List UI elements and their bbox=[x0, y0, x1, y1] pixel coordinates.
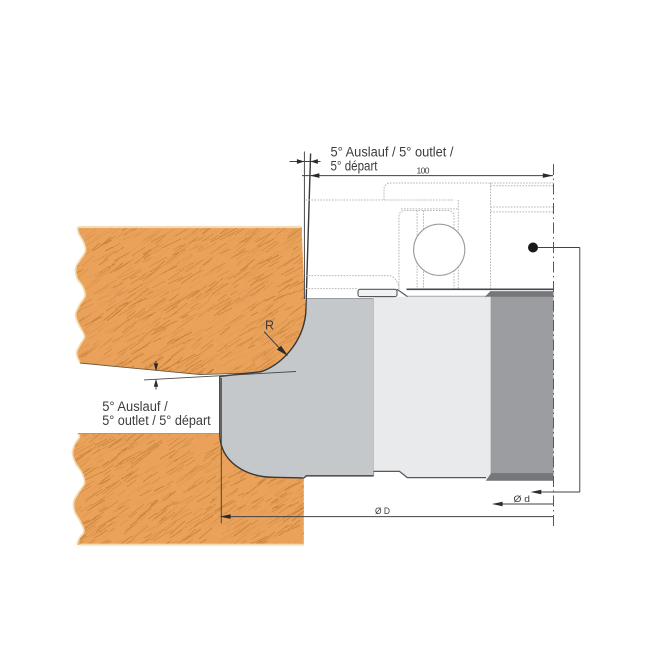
svg-text:Ø d: Ø d bbox=[514, 494, 531, 505]
svg-text:5° outlet / 5° départ: 5° outlet / 5° départ bbox=[102, 413, 211, 428]
svg-text:5° Auslauf /: 5° Auslauf / bbox=[102, 399, 168, 414]
svg-text:5° départ: 5° départ bbox=[331, 159, 378, 174]
svg-text:R: R bbox=[265, 319, 274, 333]
svg-text:Ø D: Ø D bbox=[375, 506, 390, 517]
svg-text:100: 100 bbox=[417, 166, 430, 176]
svg-text:5° Auslauf / 5° outlet /: 5° Auslauf / 5° outlet / bbox=[331, 145, 454, 160]
